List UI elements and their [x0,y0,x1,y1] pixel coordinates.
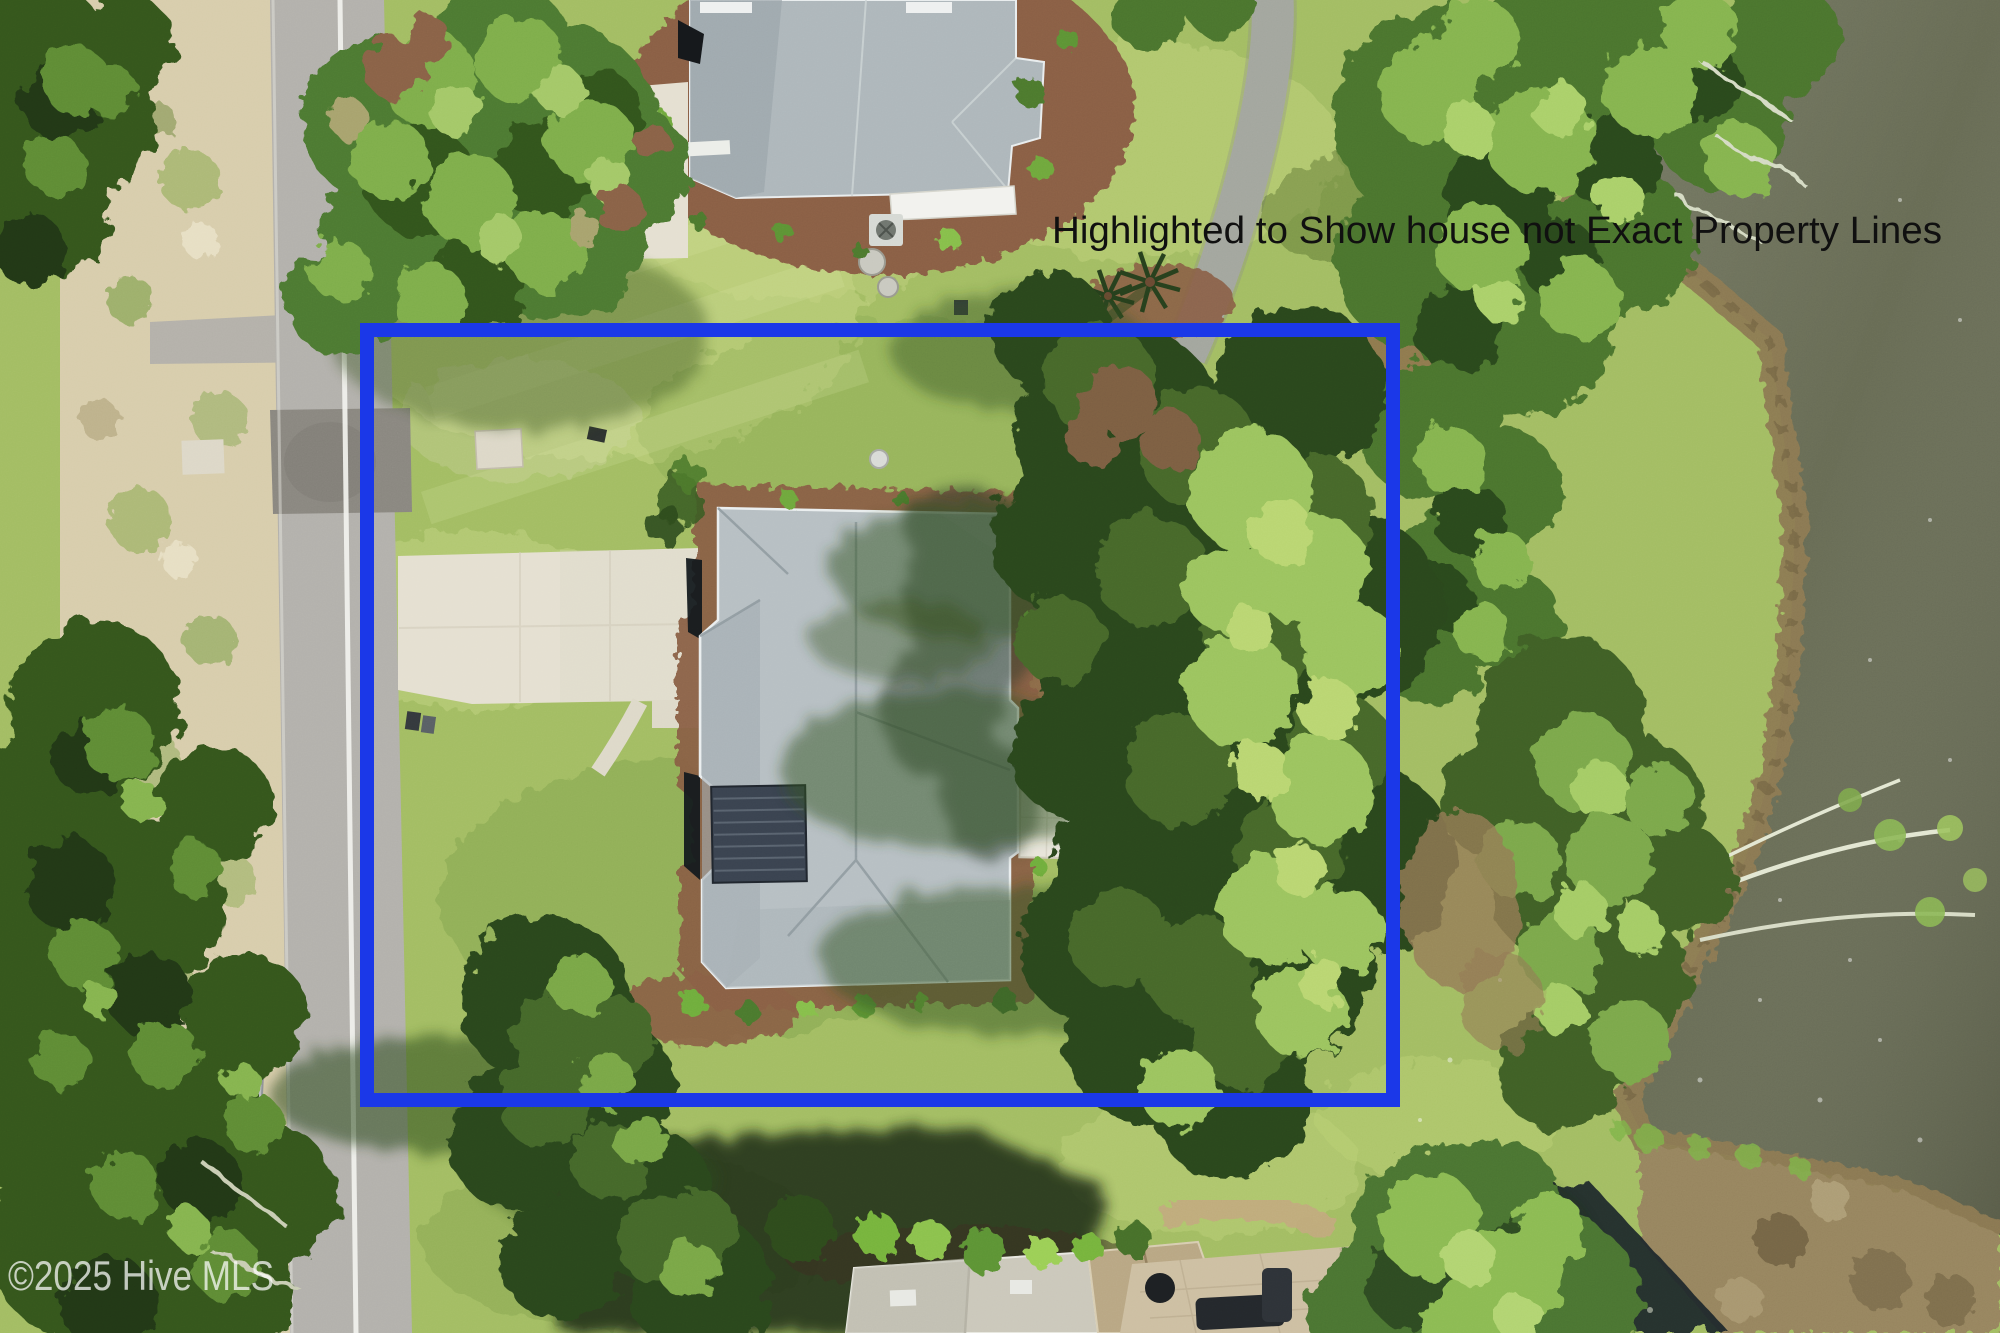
aerial-photo: Highlighted to Show house not Exact Prop… [0,0,2000,1333]
photo-grain [0,0,2000,1333]
annotation-text: Highlighted to Show house not Exact Prop… [1052,210,1942,252]
watermark: ©2025 Hive MLS [8,1252,274,1299]
